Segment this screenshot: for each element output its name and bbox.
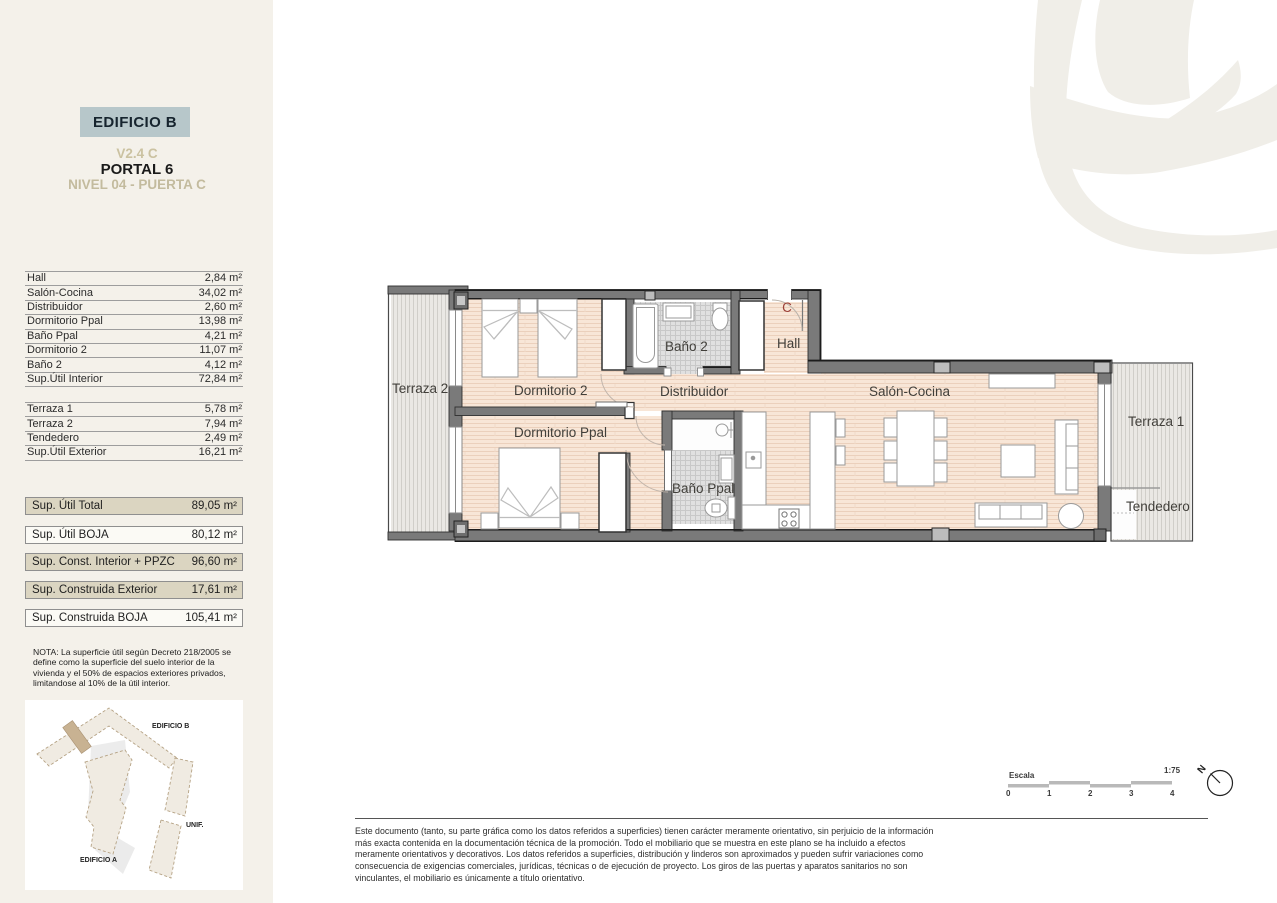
svg-text:0: 0 (1006, 789, 1011, 798)
svg-text:4: 4 (1170, 789, 1175, 798)
svg-text:3: 3 (1129, 789, 1134, 798)
svg-text:Tendedero: Tendedero (1126, 499, 1190, 514)
svg-text:Baño 2: Baño 2 (665, 339, 708, 354)
svg-text:Hall: Hall (777, 336, 800, 351)
svg-text:1: 1 (1047, 789, 1052, 798)
svg-text:C: C (782, 300, 792, 315)
svg-text:N: N (1196, 763, 1209, 776)
svg-text:Dormitorio 2: Dormitorio 2 (514, 383, 588, 398)
svg-text:Baño Ppal: Baño Ppal (672, 481, 734, 496)
svg-text:2: 2 (1088, 789, 1093, 798)
svg-text:Terraza 2: Terraza 2 (392, 381, 448, 396)
svg-text:Dormitorio Ppal: Dormitorio Ppal (514, 425, 607, 440)
svg-text:Distribuidor: Distribuidor (660, 384, 729, 399)
svg-text:Terraza 1: Terraza 1 (1128, 414, 1184, 429)
svg-text:Salón-Cocina: Salón-Cocina (869, 384, 951, 399)
